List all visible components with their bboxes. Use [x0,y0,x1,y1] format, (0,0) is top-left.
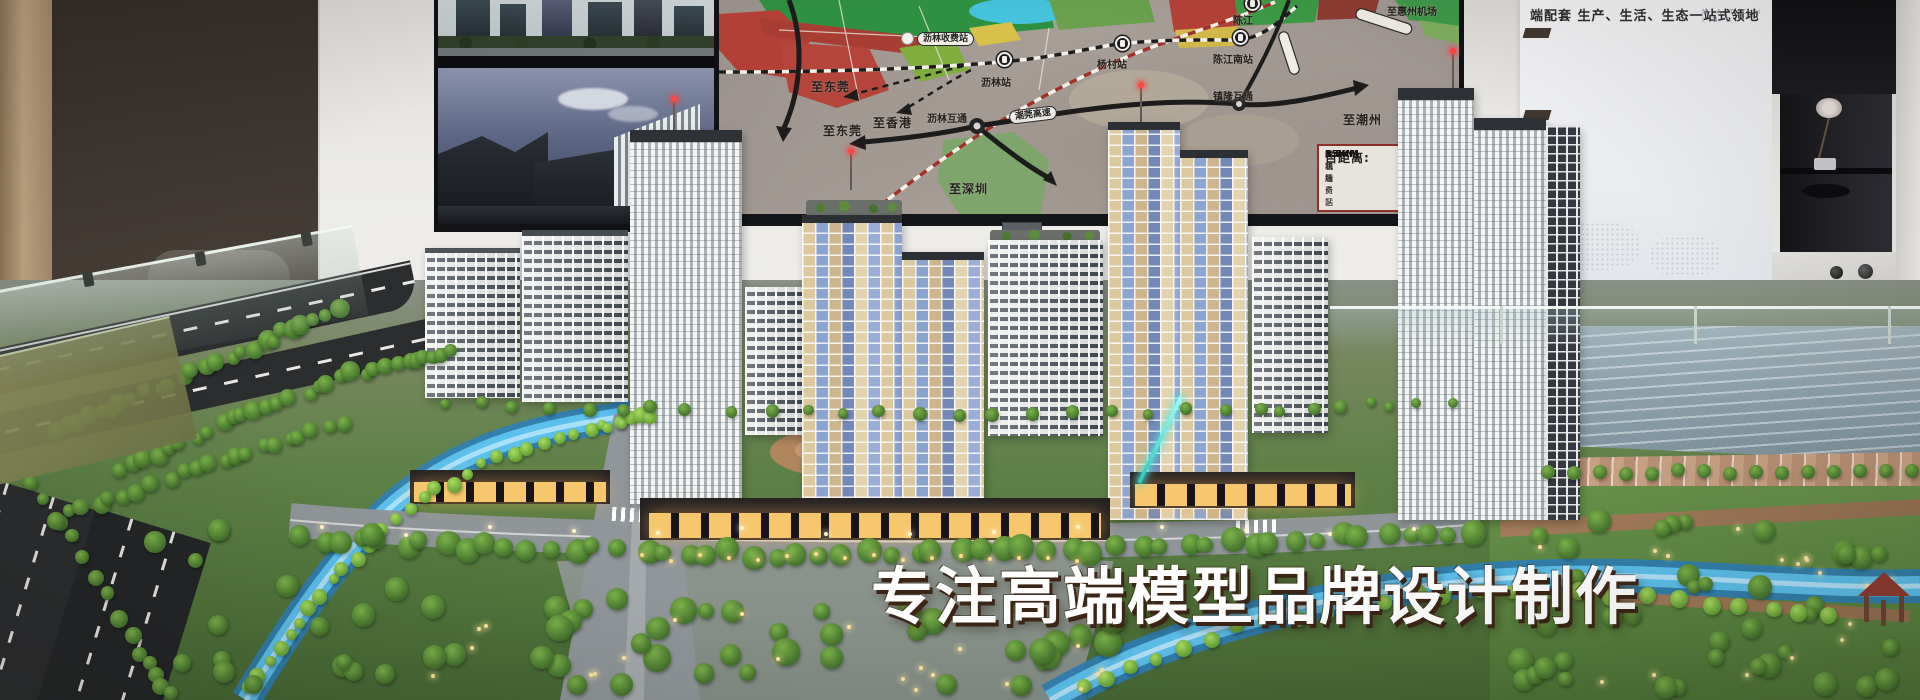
model-light [740,612,744,616]
model-tree [985,408,999,422]
model-tree [1670,590,1688,608]
model-light [908,532,912,536]
model-tree [1029,638,1055,664]
model-tree [643,400,657,414]
model-tree [200,426,213,439]
model-tree [1741,618,1762,639]
model-tree [1461,520,1486,545]
model-light [931,673,935,677]
model-light [1840,638,1844,642]
model-light [958,647,962,651]
model-light [572,529,576,533]
model-tree [188,553,204,569]
model-light [824,532,828,536]
model-tree [739,664,756,681]
model-tree [772,638,800,666]
model-tree [726,406,737,417]
model-tree [267,335,280,348]
model-tree [1708,649,1725,666]
model-tree [742,546,766,570]
model-tree [334,562,348,576]
model-light [1736,527,1740,531]
model-tree [554,432,566,444]
model-tree [1801,465,1815,479]
model-tree [144,531,165,552]
model-tree [337,416,352,431]
model-light [1005,682,1009,686]
model-light [484,624,488,628]
model-tree [1274,406,1285,417]
model-tree [1106,405,1118,417]
model-tree [1827,465,1841,479]
model-light [1600,680,1604,684]
model-light [1805,558,1809,562]
model-tree [1005,640,1026,661]
model-tree [1541,465,1555,479]
model-light [1780,558,1784,562]
model-light [776,657,780,661]
model-tree [538,437,551,450]
model-tree [375,664,395,684]
model-tree [208,615,228,635]
model-tree [678,403,691,416]
model-tree [1530,527,1548,545]
model-tree [872,405,884,417]
model-tree [1593,465,1607,479]
model-tree [1697,464,1711,478]
model-tree [1255,403,1267,415]
model-tree [646,617,669,640]
model-tree [1180,402,1193,415]
model-tree [276,575,299,598]
model-light [431,674,435,678]
model-tree [1150,653,1163,666]
model-light [477,627,481,631]
model-tree [473,532,495,554]
model-tree [1875,668,1898,691]
model-tree [606,588,628,610]
model-tree [294,618,305,629]
model-tree [1871,546,1887,562]
model-tree [1905,464,1919,478]
model-tree [238,447,252,461]
model-tree [440,399,450,409]
headline-watermark: 专注高端模型品牌设计制作 [850,546,1660,636]
model-tree [443,643,466,666]
model-tree [65,529,78,542]
railing-post [1888,306,1891,344]
model-tree [1775,466,1789,480]
model-tree [1813,672,1837,696]
model-tree [530,646,553,669]
model-tree [1066,405,1079,418]
model-tree [1308,403,1320,415]
model-tree [546,615,573,642]
model-tree [164,686,178,700]
model-tree [208,519,229,540]
model-tree [820,646,844,670]
model-tree [110,610,128,628]
model-tree [1587,509,1611,533]
model-light [919,666,923,670]
model-light [1328,532,1332,536]
model-tree [694,663,714,683]
model-tree [654,545,670,561]
model-tree [1619,467,1633,481]
model-tree [274,641,289,656]
model-tree [543,402,556,415]
model-light [698,553,702,557]
model-tree [602,423,612,433]
railing-clamp [194,251,206,267]
gazebo-leg [1899,596,1904,622]
model-tree [351,552,366,567]
model-tree [1379,523,1401,545]
model-light [1790,656,1794,660]
model-tree [289,525,310,546]
model-tree [1123,660,1138,675]
model-tree [234,345,247,358]
model-light [1244,528,1248,532]
glass-railing-right-pane [1330,309,1920,349]
model-tree [936,674,957,695]
model-tree [1143,409,1154,420]
model-tree [1439,527,1456,544]
model-tree [447,477,462,492]
model-light [1160,525,1164,529]
model-light [1076,644,1080,648]
model-light [669,559,673,563]
model-light [1666,554,1670,558]
model-light [488,525,492,529]
model-tree [1853,464,1867,478]
model-tree [423,645,446,668]
model-tree [820,623,843,646]
railing-post [1500,306,1503,344]
model-tree [47,512,65,530]
model-light [843,556,847,560]
model-tree [421,595,445,619]
model-tree [515,540,536,561]
model-tree [1098,671,1114,687]
model-tree [279,389,296,406]
model-light [622,656,626,660]
model-tree [244,675,263,694]
model-tree [1730,598,1747,615]
model-tree [610,673,634,697]
gazebo-leg [1881,600,1886,626]
model-tree [302,422,319,439]
model-tree [1655,676,1678,699]
model-tree [1366,397,1376,407]
model-tree [352,603,376,627]
gazebo-roof [1858,572,1910,596]
model-tree [88,570,104,586]
model-tree [1558,672,1573,687]
model-light [593,672,597,676]
model-light [914,688,918,692]
model-tree [505,401,517,413]
model-tree [1417,524,1437,544]
model-tree [329,574,339,584]
model-tree [329,531,352,554]
model-tree [766,404,780,418]
model-tree [323,420,336,433]
model-tree [360,523,383,546]
model-tree [1879,464,1893,478]
model-gazebo [1856,572,1916,634]
model-tree [608,539,626,557]
model-tree [809,547,827,565]
model-tree [490,450,503,463]
railing-clamp [300,231,312,247]
model-tree [37,493,49,505]
model-tree [181,362,197,378]
model-tree [101,586,114,599]
model-tree [1654,520,1671,537]
model-tree [390,513,402,525]
model-tree [1749,465,1763,479]
model-light [1848,622,1852,626]
model-tree [1384,402,1394,412]
model-tree [476,396,488,408]
model-tree [310,617,329,636]
model-tree [567,675,587,695]
model-light [673,618,677,622]
model-tree [317,375,335,393]
model-tree [286,629,297,640]
model-tree [838,408,848,418]
model-tree [462,469,473,480]
model-tree [1175,640,1192,657]
model-tree [583,403,597,417]
model-tree [1753,520,1775,542]
model-light [320,525,324,529]
model-tree [1698,577,1712,591]
model-tree [1645,467,1659,481]
model-tree [385,577,409,601]
model-tree [340,361,360,381]
model-tree [1411,398,1421,408]
model-tree [1766,602,1781,617]
model-light [1818,571,1822,575]
model-tree [1748,575,1772,599]
gazebo-leg [1864,596,1869,622]
model-tree [568,429,580,441]
model-tree [199,454,217,472]
model-light [740,526,744,530]
model-tree [75,550,89,564]
model-tree [803,405,814,416]
model-tree [409,531,428,550]
model-tree [1750,658,1766,674]
model-tree [265,656,276,667]
model-tree [125,627,142,644]
model-tree [1026,407,1040,421]
model-tree [1820,607,1837,624]
model-tree [953,409,966,422]
model-light [1745,673,1749,677]
model-tree [829,544,851,566]
model-tree [173,654,191,672]
model-tree [1856,676,1877,697]
model-tree [405,503,417,515]
model-tree [1703,597,1720,614]
model-tree [476,458,486,468]
model-tree [1723,467,1737,481]
model-tree [1671,463,1685,477]
model-tree [1882,639,1899,656]
model-tree [72,499,88,515]
model-light [1796,562,1800,566]
model-tree [520,442,533,455]
model-light [1076,525,1080,529]
model-tree [1220,404,1232,416]
model-tree [1334,400,1348,414]
model-tree [213,661,235,683]
model-tree [141,475,158,492]
model-tree [1567,466,1581,480]
model-tree [913,407,927,421]
model-light [1412,527,1416,531]
showroom-photo: 至东莞 至东莞 至香港 至深圳 至潮州 至惠州机场 沥林收费站 沥林站 沥林互通… [0,0,1920,700]
model-tree [1010,675,1032,697]
model-tree [206,353,224,371]
model-tree [266,437,282,453]
model-tree [427,481,441,495]
model-light [404,533,408,537]
model-tree [543,541,560,558]
model-tree [1448,398,1458,408]
model-light [992,530,996,534]
model-tree [312,589,327,604]
model-tree [1709,631,1730,652]
model-tree [1345,525,1368,548]
model-tree [494,538,513,557]
model-tree [100,491,114,505]
model-tree [698,603,714,619]
model-light [470,646,474,650]
model-tree [1790,604,1807,621]
model-tree [444,344,456,356]
model-light [901,677,905,681]
model-tree [720,644,741,665]
model-tree [583,537,599,553]
model-tree [813,603,829,619]
model-tree [1554,652,1573,671]
railing-clamp [82,272,94,288]
model-light [656,531,660,535]
railing-post [1694,306,1697,344]
model-tree [1534,657,1556,679]
model-light [1652,673,1656,677]
